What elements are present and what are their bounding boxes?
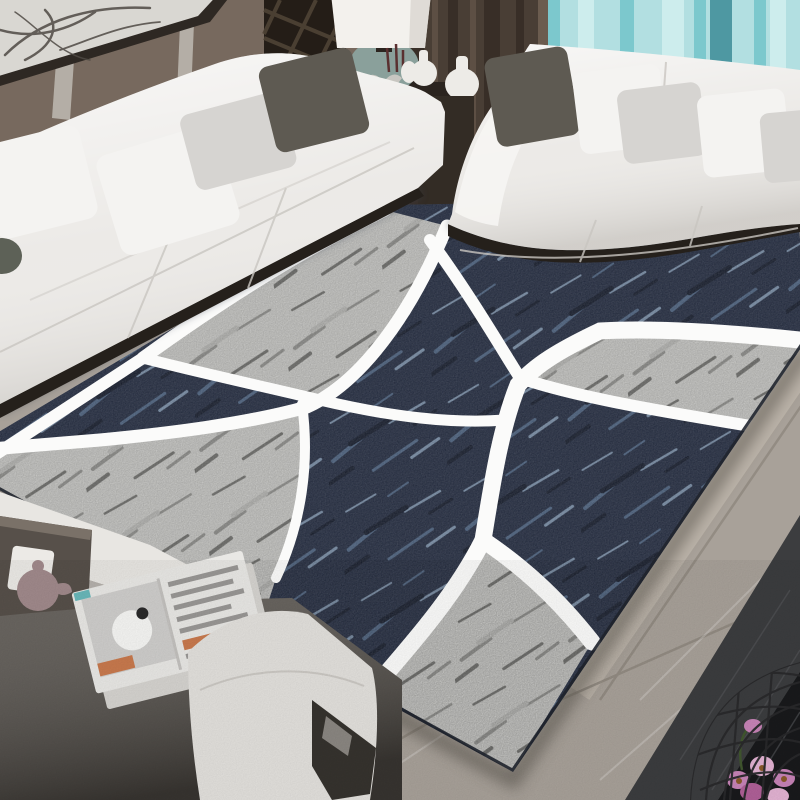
living-room-photo — [0, 0, 800, 800]
side-vase-neck — [456, 56, 468, 74]
pillow-gray — [616, 81, 708, 165]
gourd-vase-neck — [419, 50, 428, 64]
scene-canvas — [0, 0, 800, 800]
right-sofa — [448, 44, 800, 263]
floor-grain — [0, 560, 800, 800]
pillow-gray — [759, 109, 800, 184]
pillow-dark — [483, 45, 581, 148]
